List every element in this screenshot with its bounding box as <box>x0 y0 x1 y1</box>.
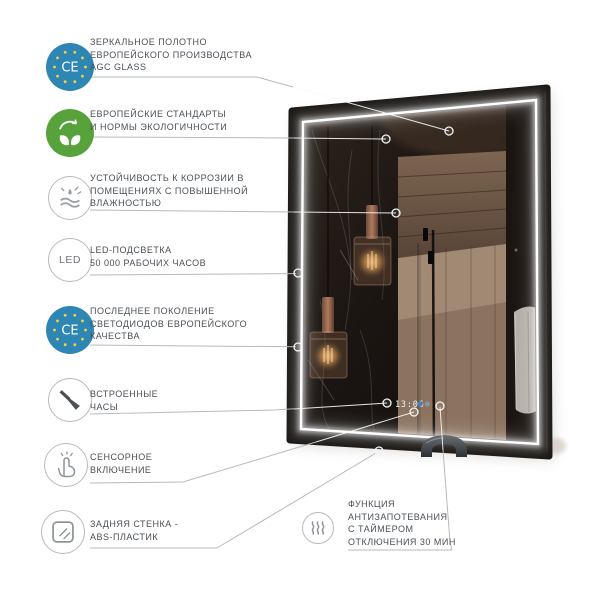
mirror-reflection-scene <box>303 78 560 455</box>
steam-icon <box>302 512 334 544</box>
feature-text-line: ФУНКЦИЯ <box>348 498 548 511</box>
water-resist-icon <box>48 176 92 220</box>
feature-text-line: ЗАДНЯЯ СТЕНКА - <box>90 518 290 531</box>
feature-text-line: ПОСЛЕДНЕЕ ПОКОЛЕНИЕ <box>90 305 290 318</box>
feature-text-line: И НОРМЫ ЭКОЛОГИЧНОСТИ <box>90 121 290 134</box>
led-text-icon: LED <box>48 238 92 282</box>
feature-text-line: СВЕТОДИОДОВ ЕВРОПЕЙСКОГО <box>90 318 290 331</box>
svg-text:CE: CE <box>61 324 78 339</box>
feature-text-line: ВЛАЖНОСТЬЮ <box>90 197 290 210</box>
ce-euro-icon: CE <box>46 306 94 354</box>
feature-text-line: С ТАЙМЕРОМ <box>348 523 548 536</box>
door-handle <box>428 251 434 264</box>
clock-icon <box>48 378 92 422</box>
feature-text-line: ОТКЛЮЧЕНИЯ 30 МИН <box>348 536 548 549</box>
touch-button-blue[interactable] <box>417 401 423 407</box>
eco-leaves-icon <box>46 109 94 157</box>
touch-icon <box>44 443 88 487</box>
abs-panel-icon <box>41 510 85 554</box>
feature-text-line: ВКЛЮЧЕНИЕ <box>90 464 290 477</box>
feature-text-line: УСТОЙЧИВОСТЬ К КОРРОЗИИ В <box>90 172 290 185</box>
feature-text-line: ЗЕРКАЛЬНОЕ ПОЛОТНО <box>90 36 290 49</box>
feature-text-line: ЧАСЫ <box>90 401 290 414</box>
feature-text-line: АНТИЗАПОТЕВАНИЯ <box>348 511 548 524</box>
feature-text-line: ЕВРОПЕЙСКОГО ПРОИЗВОДСТВА <box>90 49 290 62</box>
door-handle <box>423 228 428 241</box>
feature-text-line: LED-ПОДСВЕТКА <box>90 244 290 257</box>
feature-text-line: ВСТРОЕННЫЕ <box>90 388 290 401</box>
feature-text-line: 50 000 РАБОЧИХ ЧАСОВ <box>90 257 290 270</box>
ce-euro-icon: CE <box>46 43 94 91</box>
infographic-canvas: 13:06 <box>0 0 600 600</box>
feature-text-line: КАЧЕСТВА <box>90 330 290 343</box>
touch-button-gray[interactable] <box>425 402 430 407</box>
feature-text-line: AGC GLASS <box>90 61 290 74</box>
led-label: LED <box>59 254 81 266</box>
svg-text:CE: CE <box>61 61 78 76</box>
feature-text-line: СЕНСОРНОЕ <box>90 451 290 464</box>
feature-text-line: ABS-ПЛАСТИК <box>90 531 290 544</box>
feature-text-line: ЕВРОПЕЙСКИЕ СТАНДАРТЫ <box>90 108 290 121</box>
feature-text-line: ПОМЕЩЕНИЯХ С ПОВЫШЕННОЙ <box>90 185 290 198</box>
